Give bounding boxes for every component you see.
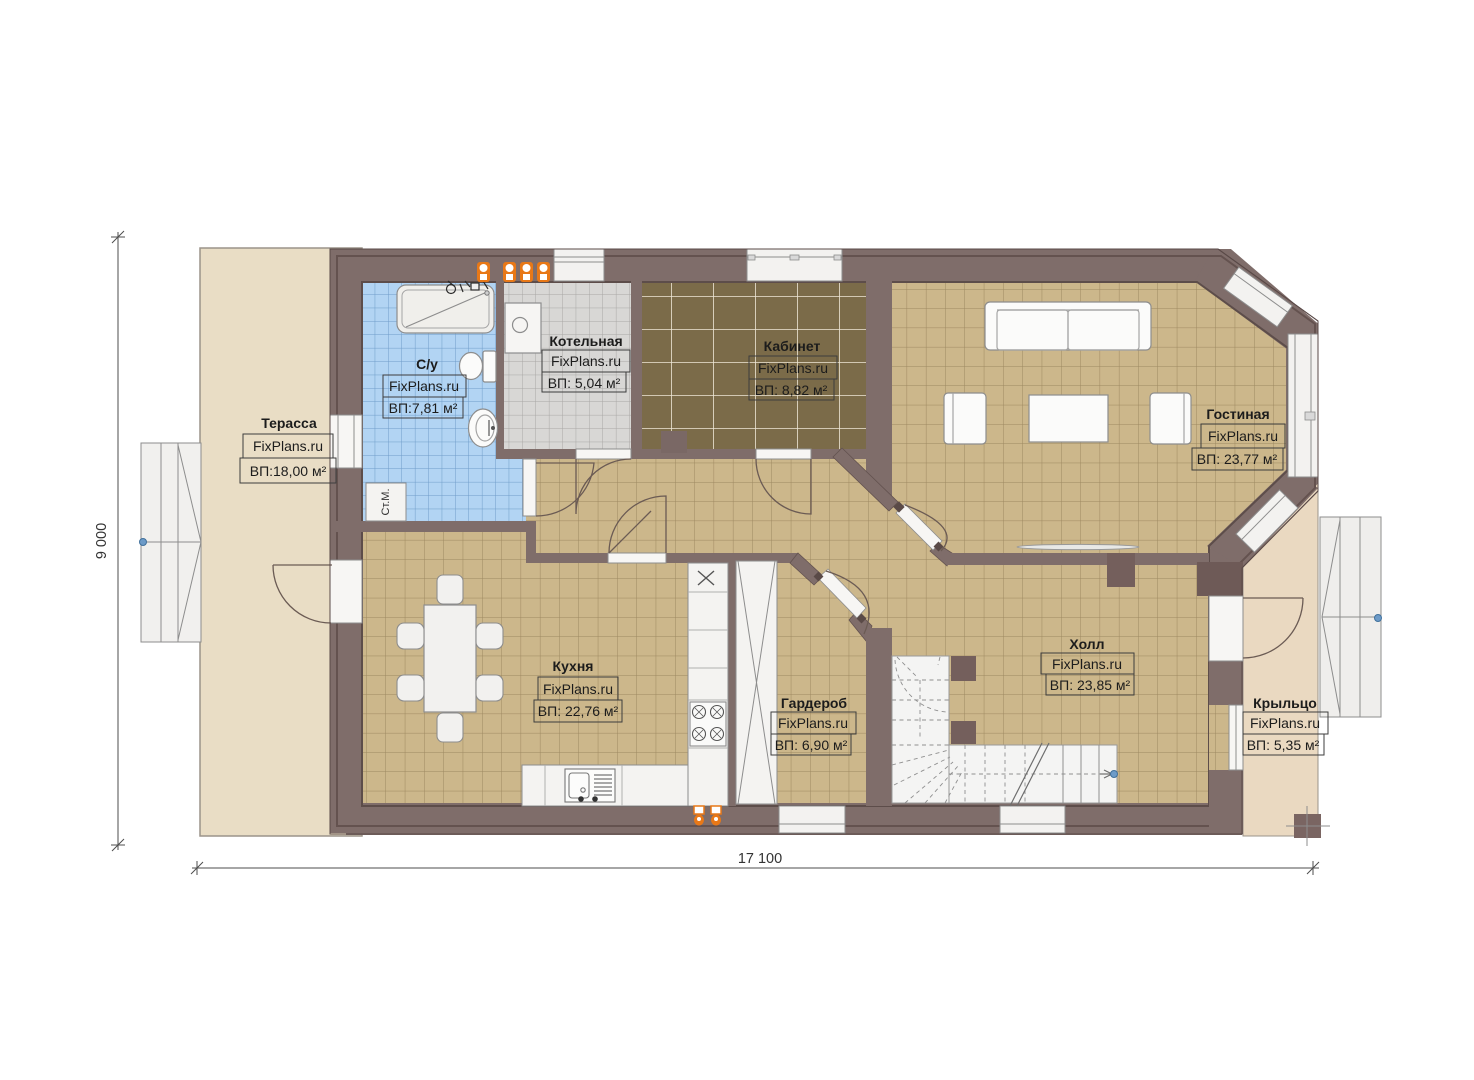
svg-text:ВП:18,00 м²: ВП:18,00 м² [250,463,327,479]
svg-text:Кабинет: Кабинет [764,338,821,354]
svg-text:Гостиная: Гостиная [1206,406,1269,422]
svg-text:ВП: 5,35 м²: ВП: 5,35 м² [1247,737,1320,753]
svg-text:FixPlans.ru: FixPlans.ru [389,378,459,394]
svg-text:FixPlans.ru: FixPlans.ru [1052,656,1122,672]
svg-text:Терасса: Терасса [261,415,317,431]
svg-text:FixPlans.ru: FixPlans.ru [253,438,323,454]
svg-text:Гардероб: Гардероб [781,695,848,711]
svg-text:ВП:7,81 м²: ВП:7,81 м² [389,400,458,416]
svg-text:ВП: 23,85 м²: ВП: 23,85 м² [1050,677,1131,693]
svg-text:Холл: Холл [1069,636,1104,652]
svg-text:Котельная: Котельная [549,333,622,349]
svg-text:FixPlans.ru: FixPlans.ru [758,360,828,376]
svg-text:17 100: 17 100 [738,851,782,867]
svg-text:FixPlans.ru: FixPlans.ru [1208,428,1278,444]
svg-text:9 000: 9 000 [94,523,110,559]
svg-text:FixPlans.ru: FixPlans.ru [551,353,621,369]
svg-text:ВП: 22,76 м²: ВП: 22,76 м² [538,703,619,719]
svg-text:ВП: 6,90 м²: ВП: 6,90 м² [775,737,848,753]
svg-text:Крыльцо: Крыльцо [1253,695,1317,711]
svg-text:ВП: 23,77 м²: ВП: 23,77 м² [1197,451,1278,467]
svg-text:FixPlans.ru: FixPlans.ru [778,715,848,731]
svg-text:ВП: 8,82 м²: ВП: 8,82 м² [755,382,828,398]
svg-text:FixPlans.ru: FixPlans.ru [1250,715,1320,731]
svg-text:С/у: С/у [416,356,438,372]
svg-text:Кухня: Кухня [553,658,594,674]
svg-text:ВП: 5,04 м²: ВП: 5,04 м² [548,375,621,391]
svg-text:Ст.М.: Ст.М. [380,488,392,515]
svg-text:FixPlans.ru: FixPlans.ru [543,681,613,697]
